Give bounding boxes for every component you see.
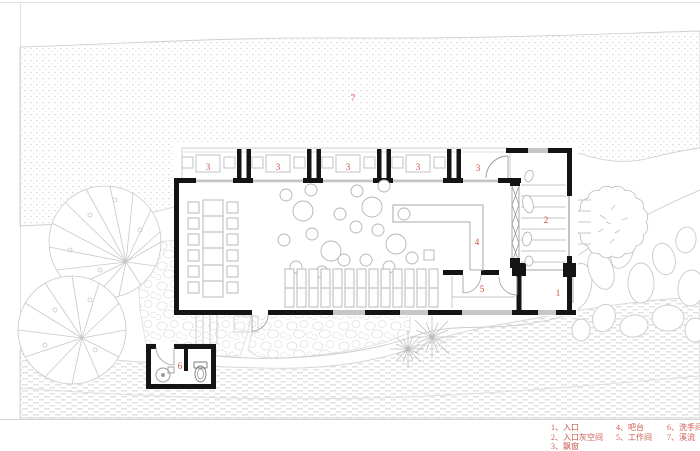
room-label-bay-window-5: 3: [476, 163, 481, 173]
room-label-bay-window-2: 3: [276, 162, 281, 172]
legend-item-bar: 4、吧台: [616, 423, 658, 433]
room-label-workroom: 5: [480, 284, 485, 294]
door-opening: [156, 342, 174, 349]
legend-item-bay-window: 3、飘窗: [551, 442, 607, 451]
legend-column-3: 6、洗手间 7、溪流: [667, 423, 700, 451]
room-label-stream: 7: [351, 93, 356, 103]
room-label-bay-window-4: 3: [416, 162, 421, 172]
legend: 1、入口 2、入口灰空间 3、飘窗 4、吧台 5、工作间 6、洗手间 7、溪流: [551, 423, 700, 451]
entry-post: [563, 263, 576, 277]
legend-item-restroom: 6、洗手间: [667, 423, 700, 433]
room-label-bar: 4: [475, 237, 480, 247]
legend-column-2: 4、吧台 5、工作间: [616, 423, 658, 451]
legend-item-gray-space: 2、入口灰空间: [551, 433, 607, 443]
room-label-restroom: 6: [178, 361, 183, 371]
site-plan-drawing: 3 3 3 3 3 7 2 4 5 1 6: [0, 0, 700, 451]
south-terrace: [248, 313, 410, 358]
floor-plan-canvas: 3 3 3 3 3 7 2 4 5 1 6 1、入口 2、入口灰空间 3、飘窗 …: [0, 0, 700, 451]
tree-large-2: [18, 276, 126, 384]
legend-column-1: 1、入口 2、入口灰空间 3、飘窗: [551, 423, 607, 451]
legend-item-workroom: 5、工作间: [616, 433, 658, 443]
room-label-bay-window-1: 3: [206, 162, 211, 172]
bar-stool: [424, 250, 434, 260]
room-label-gray-space: 2: [544, 215, 549, 225]
legend-item-entrance: 1、入口: [551, 423, 607, 433]
room-label-bay-window-3: 3: [346, 162, 351, 172]
legend-item-stream: 7、溪流: [667, 433, 700, 443]
room-label-entrance: 1: [556, 288, 561, 298]
